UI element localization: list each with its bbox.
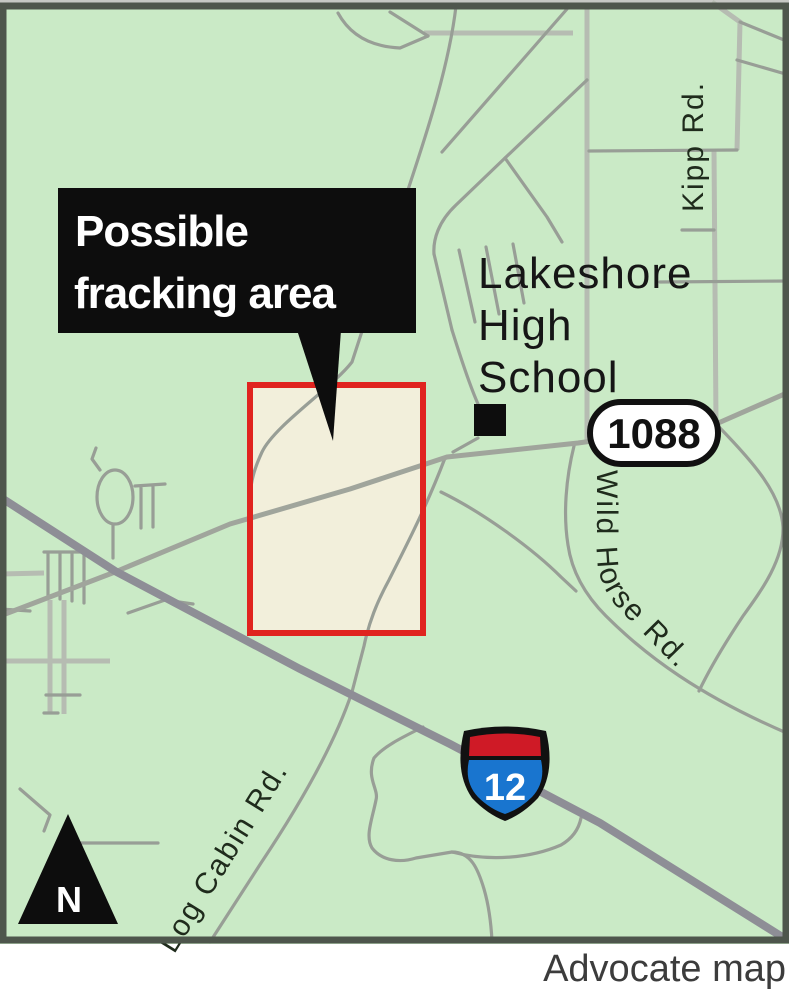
school-label-line3: School — [478, 353, 619, 402]
route-shield-number: 1088 — [607, 410, 700, 457]
interstate-shield-band — [469, 734, 541, 757]
north-arrow-label: N — [56, 879, 82, 920]
interstate-shield-number: 12 — [484, 767, 526, 809]
credit-text: Advocate map — [543, 948, 786, 990]
road-left-stub — [0, 573, 44, 574]
school-marker — [474, 404, 506, 436]
kipp-rd-label-group: Kipp Rd. — [677, 81, 710, 212]
road-kipp-lower — [714, 150, 716, 424]
route-1088-shield: 1088 — [590, 402, 718, 464]
school-label-line2: High — [478, 301, 573, 350]
school-label-line1: Lakeshore — [478, 249, 692, 298]
callout-line1: Possible — [75, 207, 248, 256]
advocate-map-graphic: Kipp Rd. Wild Horse Rd. Log Cabin Rd. La… — [0, 0, 789, 990]
callout-line2: fracking area — [74, 269, 336, 318]
kipp-rd-label: Kipp Rd. — [677, 81, 710, 212]
map-canvas: Kipp Rd. Wild Horse Rd. Log Cabin Rd. La… — [0, 0, 789, 990]
